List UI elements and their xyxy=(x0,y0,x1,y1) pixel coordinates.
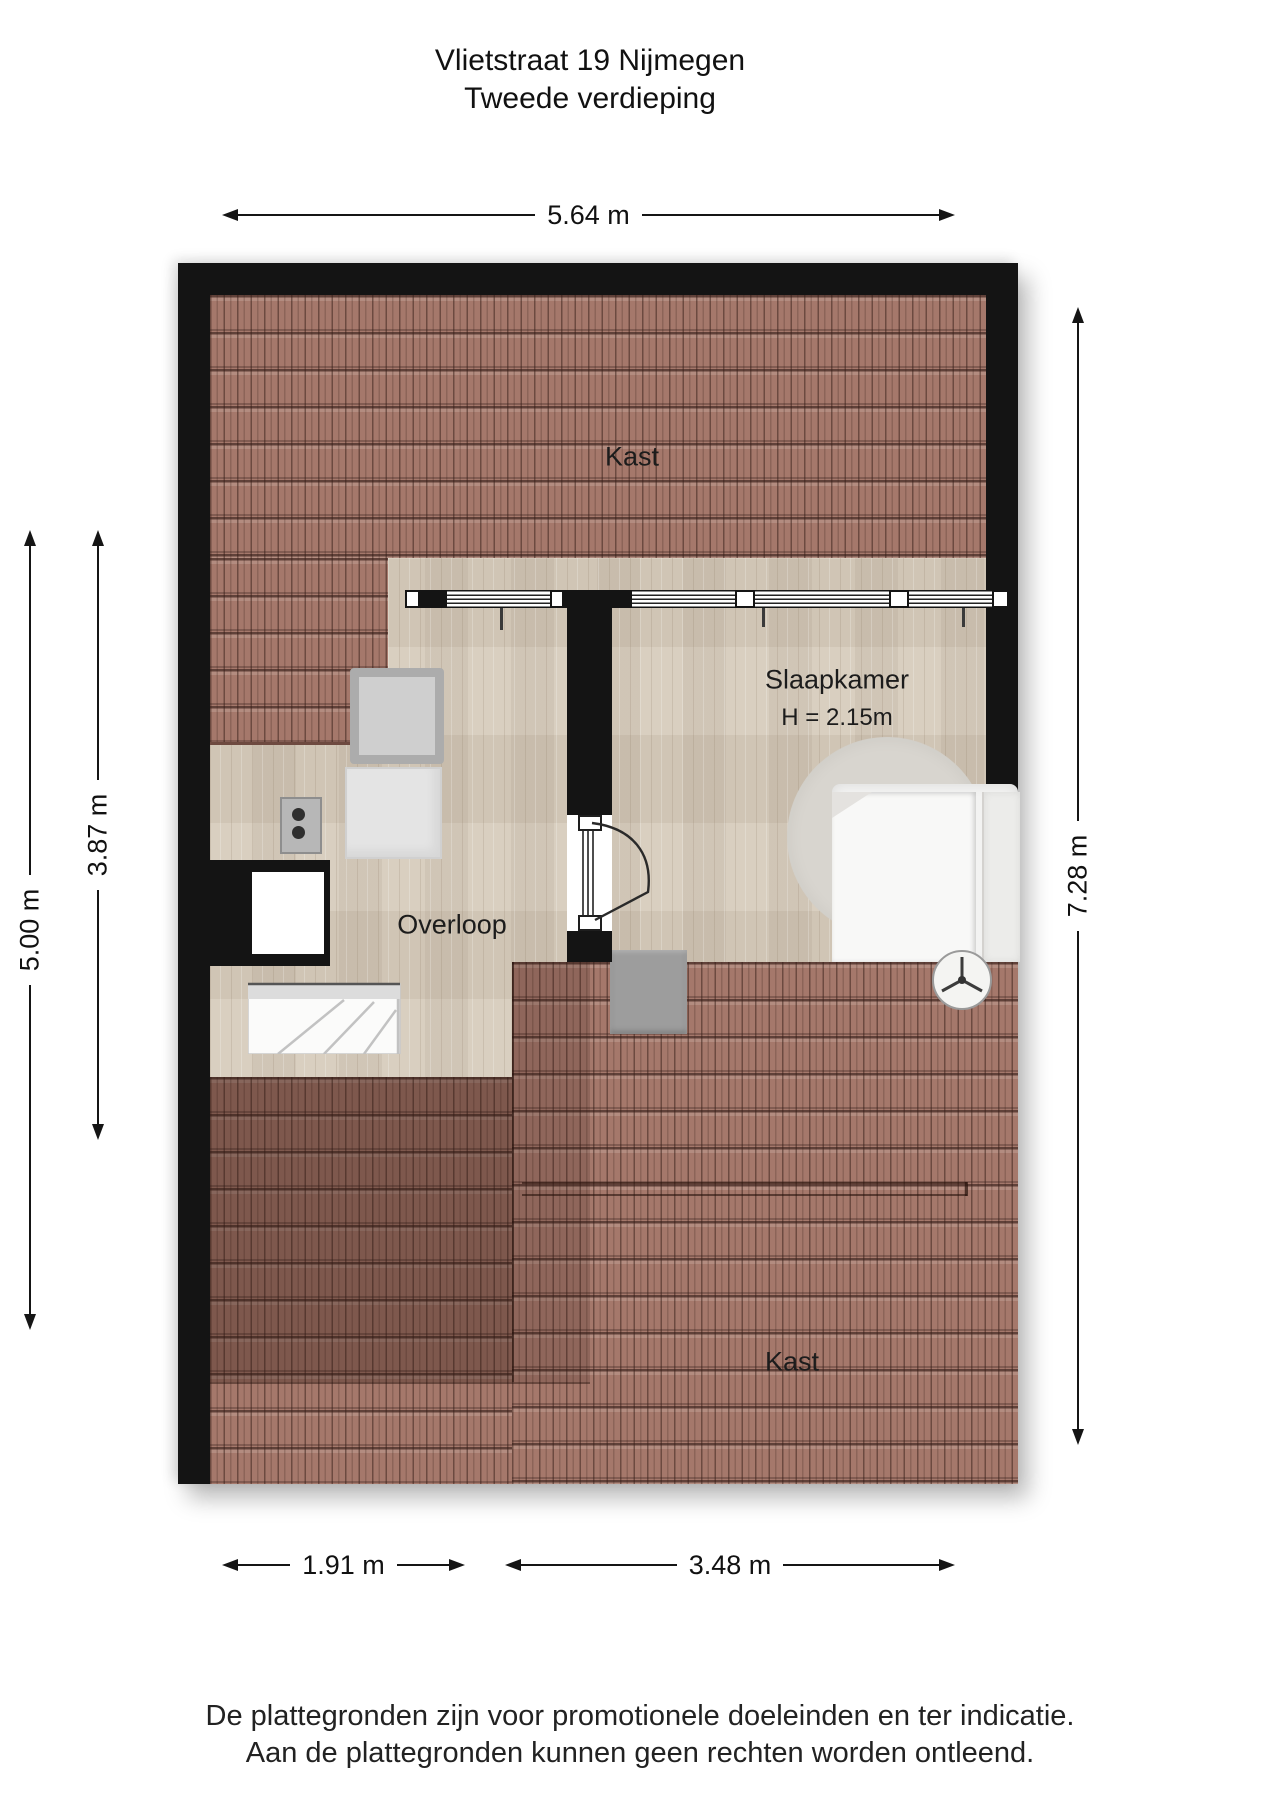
title-floor: Tweede verdieping xyxy=(0,80,1180,118)
wall-segment xyxy=(420,590,447,608)
window-overloop xyxy=(447,590,550,608)
arrowhead-down-icon xyxy=(24,1314,36,1330)
disclaimer: De plattegronden zijn voor promotionele … xyxy=(40,1698,1240,1772)
arrowhead-up-icon xyxy=(92,530,104,546)
duvet-fold xyxy=(832,792,872,818)
bed-pillow xyxy=(982,792,1020,962)
arrowhead-left-icon xyxy=(505,1559,521,1571)
arrowhead-left-icon xyxy=(222,1559,238,1571)
wall-segment xyxy=(563,590,632,608)
disclaimer-line-2: Aan de plattegronden kunnen geen rechten… xyxy=(40,1735,1240,1772)
dimension-top-label: 5.64 m xyxy=(535,200,642,231)
room-label-overloop: Overloop xyxy=(397,910,507,941)
room-label-slaapkamer: Slaapkamer xyxy=(765,665,909,696)
window-divider xyxy=(735,590,755,608)
dimension-left-outer: 5.00 m xyxy=(12,530,48,1330)
window-divider xyxy=(992,590,1009,608)
armchair xyxy=(350,668,444,764)
dividing-wall-upper xyxy=(567,608,612,815)
roof-shadow-left xyxy=(210,1077,512,1382)
window-slaapkamer-1 xyxy=(632,590,735,608)
arrowhead-right-icon xyxy=(939,1559,955,1571)
dimension-right: 7.28 m xyxy=(1060,307,1096,1445)
wall-tick xyxy=(762,608,765,627)
window-frame-cap xyxy=(405,590,420,608)
window-slaapkamer-2 xyxy=(755,590,889,608)
staircase xyxy=(248,978,404,1054)
room-label-kast-bottom: Kast xyxy=(765,1347,819,1378)
chimney-shaft-opening xyxy=(252,872,324,954)
arrowhead-down-icon xyxy=(1072,1429,1084,1445)
roof-seam-line-1 xyxy=(522,1182,967,1184)
wall-tick xyxy=(500,608,503,630)
arrowhead-left-icon xyxy=(222,209,238,221)
dimension-left-inner-label: 3.87 m xyxy=(79,784,118,887)
utility-box xyxy=(280,797,322,854)
side-table xyxy=(345,767,442,859)
roof-seam-end xyxy=(965,1182,968,1196)
floorplan-page: Vlietstraat 19 Nijmegen Tweede verdiepin… xyxy=(0,0,1280,1810)
window-divider xyxy=(550,590,564,608)
title-address: Vlietstraat 19 Nijmegen xyxy=(0,42,1180,80)
arrowhead-right-icon xyxy=(939,209,955,221)
room-label-kast-top: Kast xyxy=(605,442,659,473)
dresser xyxy=(610,950,687,1034)
wall-tick xyxy=(962,608,965,627)
dimension-bottom-left: 1.91 m xyxy=(222,1550,465,1580)
knob-icon xyxy=(292,808,305,821)
knob-icon xyxy=(292,826,305,839)
roof-valley-line xyxy=(512,962,514,1382)
door-swing xyxy=(565,812,657,934)
dimension-right-label: 7.28 m xyxy=(1059,825,1098,928)
disclaimer-line-1: De plattegronden zijn voor promotionele … xyxy=(40,1698,1240,1735)
room-label-slaapkamer-height: H = 2.15m xyxy=(781,704,892,732)
arrowhead-up-icon xyxy=(24,530,36,546)
dimension-left-outer-label: 5.00 m xyxy=(11,879,50,982)
dimension-bottom-right-label: 3.48 m xyxy=(677,1550,784,1581)
roof-shadow-edge xyxy=(210,1382,590,1384)
window-divider xyxy=(889,590,909,608)
ventilation-fan-icon xyxy=(930,948,994,1012)
dimension-top: 5.64 m xyxy=(222,200,955,230)
floorplan: Kast Slaapkamer H = 2.15m Overloop Kast xyxy=(178,263,1018,1484)
page-title: Vlietstraat 19 Nijmegen Tweede verdiepin… xyxy=(0,42,1180,118)
arrowhead-right-icon xyxy=(449,1559,465,1571)
window-slaapkamer-3 xyxy=(909,590,992,608)
dimension-bottom-left-label: 1.91 m xyxy=(290,1550,397,1581)
wall-segment xyxy=(1009,590,1018,608)
arrowhead-up-icon xyxy=(1072,307,1084,323)
dimension-left-inner: 3.87 m xyxy=(80,530,116,1140)
dividing-wall-lower xyxy=(567,930,612,962)
dimension-bottom-right: 3.48 m xyxy=(505,1550,955,1580)
wood-floor: Kast Slaapkamer H = 2.15m Overloop Kast xyxy=(210,295,986,1452)
roof-shadow-mid xyxy=(512,962,590,1382)
arrowhead-down-icon xyxy=(92,1124,104,1140)
roof-seam-line-2 xyxy=(522,1194,967,1196)
roof-kast-top xyxy=(210,295,986,558)
